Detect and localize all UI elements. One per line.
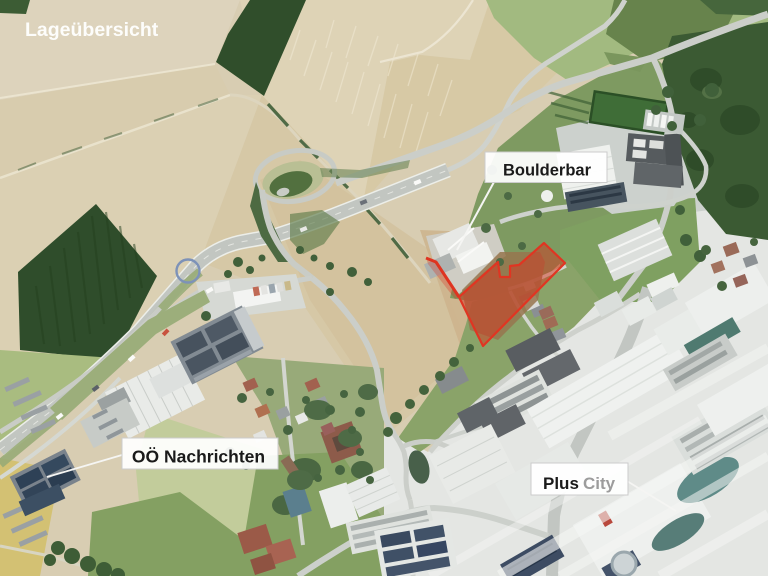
svg-text:City: City (583, 474, 616, 493)
svg-text:OÖ Nachrichten: OÖ Nachrichten (132, 447, 265, 467)
svg-text:Boulderbar: Boulderbar (503, 162, 592, 180)
svg-text:Plus: Plus (543, 474, 579, 493)
svg-text:Lageübersicht: Lageübersicht (25, 19, 159, 41)
